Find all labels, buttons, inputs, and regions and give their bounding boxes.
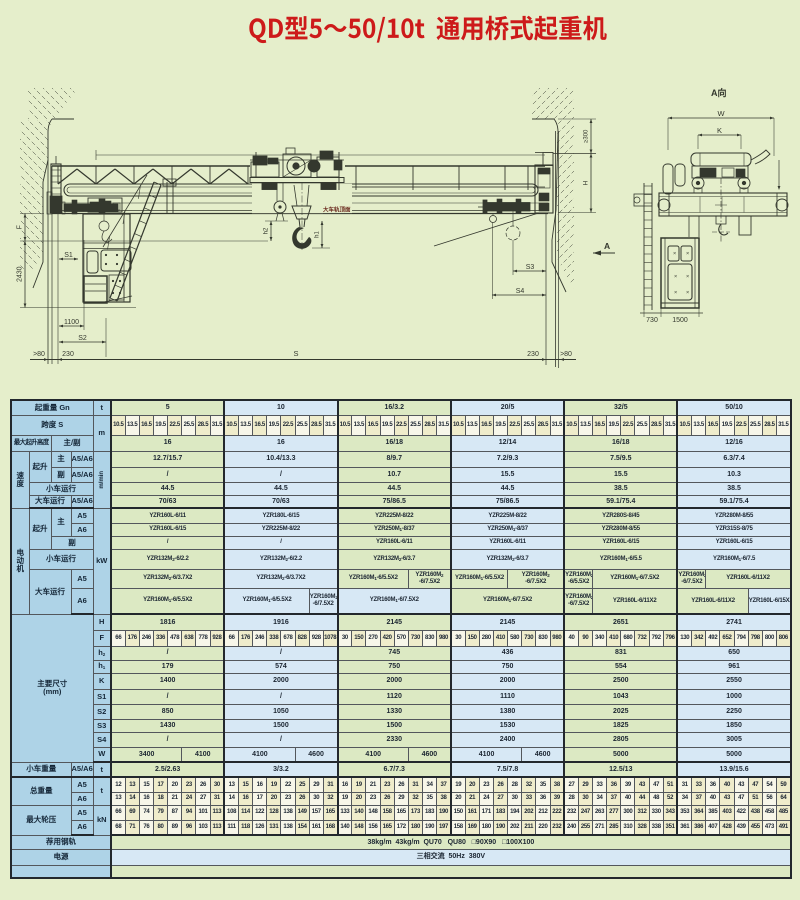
svg-text:730: 730 [646, 317, 658, 324]
svg-text:S: S [293, 349, 298, 358]
svg-text:大车轨顶面: 大车轨顶面 [323, 206, 351, 214]
svg-text:F: F [17, 225, 24, 229]
svg-text:×: × [674, 290, 677, 296]
svg-text:2430: 2430 [17, 266, 24, 282]
svg-text:230: 230 [62, 351, 74, 358]
svg-text:1100: 1100 [64, 319, 79, 326]
svg-text:S1: S1 [64, 252, 73, 259]
svg-text:230: 230 [527, 351, 539, 358]
svg-text:>80: >80 [560, 351, 572, 358]
svg-text:×: × [686, 251, 689, 257]
svg-text:S3: S3 [526, 264, 535, 271]
svg-text:1500: 1500 [672, 317, 688, 324]
svg-text:A: A [604, 241, 610, 251]
svg-text:W: W [717, 109, 725, 118]
svg-text:H: H [583, 180, 590, 185]
svg-text:×: × [686, 290, 689, 296]
svg-text:×: × [673, 251, 676, 257]
svg-text:h2: h2 [264, 227, 270, 234]
svg-text:h1: h1 [315, 231, 321, 238]
svg-text:S4: S4 [516, 288, 525, 295]
svg-text:S2: S2 [78, 335, 87, 342]
svg-text:K: K [717, 126, 722, 135]
svg-text:×: × [686, 274, 689, 280]
svg-text:×: × [674, 274, 677, 280]
svg-text:≥300: ≥300 [584, 129, 590, 143]
svg-text:>80: >80 [33, 351, 45, 358]
svg-text:A向: A向 [711, 87, 727, 98]
